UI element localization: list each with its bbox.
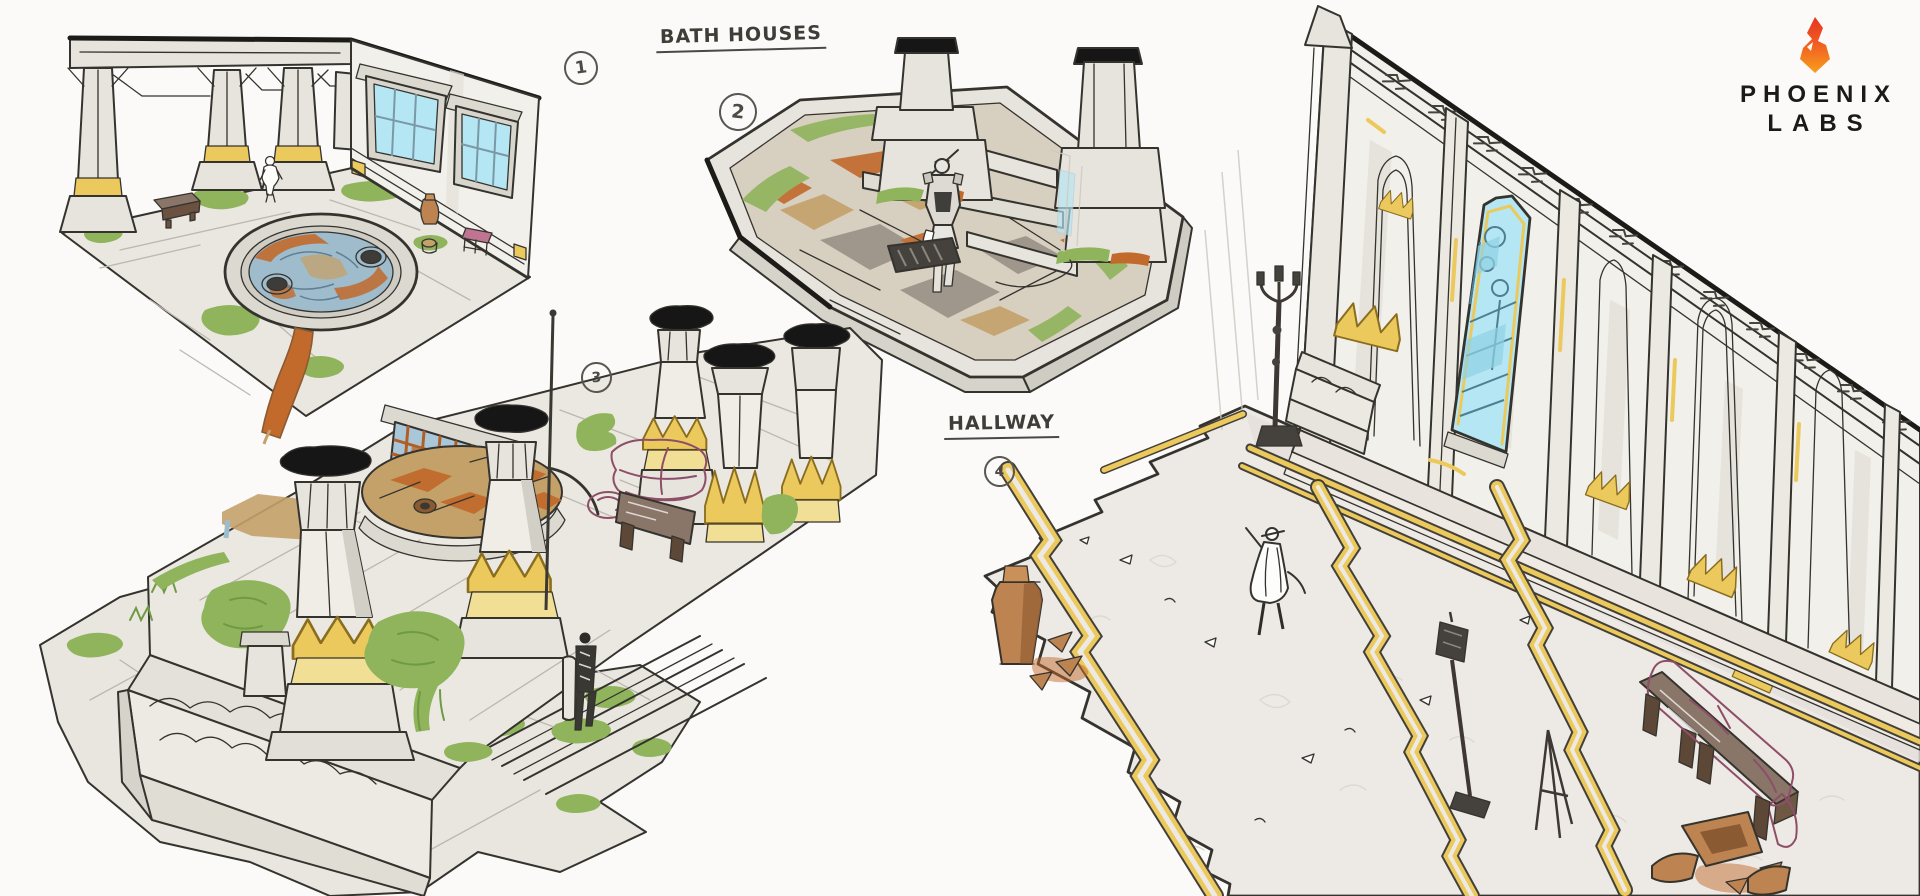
bath-houses-label: BATH HOUSES: [656, 22, 827, 53]
sketch-3-column-terrace: [40, 306, 882, 896]
logo-text-phoenix: PHOENIX: [1725, 81, 1912, 109]
round-pool: [225, 214, 417, 330]
phoenix-labs-logo: PHOENIX LABS: [1725, 16, 1905, 138]
concept-art-sheet: 1 BATH HOUSES 2 3 HALLWAY 4 PHOENIX LABS: [0, 0, 1920, 896]
amphora: [421, 194, 439, 253]
sketch-1-bath-interior: [60, 38, 539, 444]
stone-stump: [240, 632, 290, 696]
hallway-label: HALLWAY: [944, 411, 1060, 440]
logo-text-labs: LABS: [1725, 110, 1915, 138]
concept-sketches: [0, 0, 1920, 896]
flame-icon: [1794, 16, 1836, 74]
